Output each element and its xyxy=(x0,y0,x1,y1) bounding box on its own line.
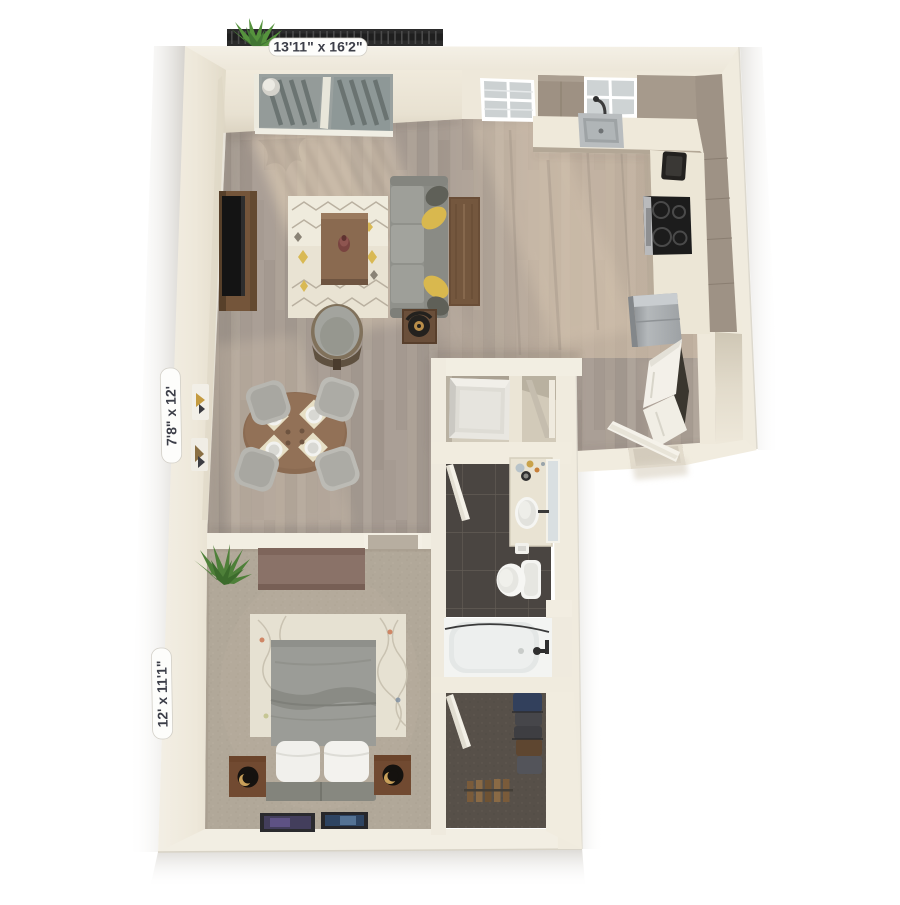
svg-text:7'8" x 12': 7'8" x 12' xyxy=(162,386,179,446)
svg-text:12' x 11'1": 12' x 11'1" xyxy=(153,660,170,727)
svg-text:13'11" x 16'2": 13'11" x 16'2" xyxy=(273,39,362,55)
